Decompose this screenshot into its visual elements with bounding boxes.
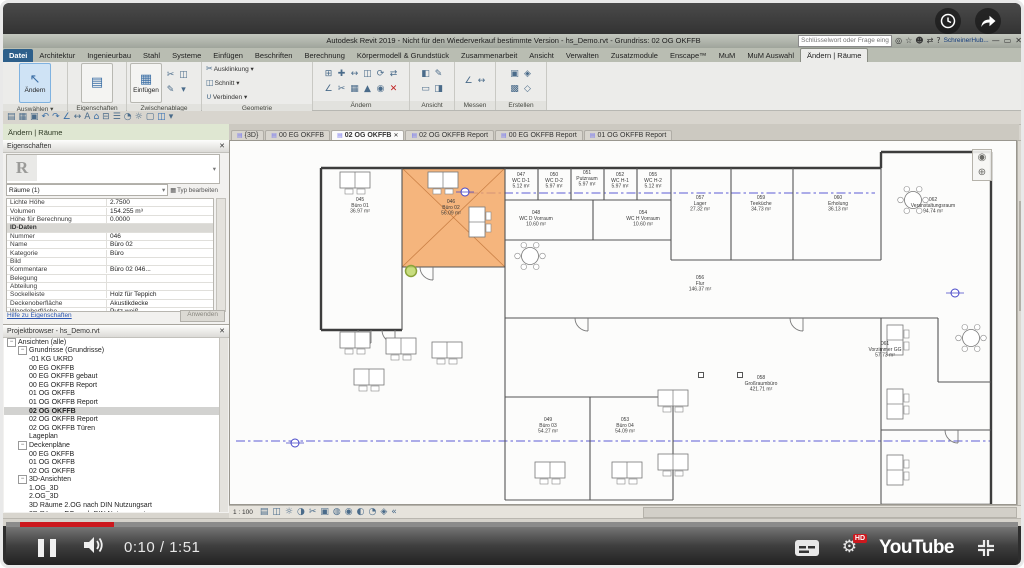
property-label: Lichte Höhe (7, 199, 107, 206)
tree-item-label: 02 OG OKFFB (29, 468, 75, 475)
close-properties-icon[interactable]: ✕ (219, 142, 225, 150)
view-tab-label: {3D} (245, 132, 259, 139)
tree-item-label: -01 KG UKRD (29, 356, 73, 363)
view-tab-icon: ▤ (411, 132, 417, 139)
create-assembly-icon[interactable]: ▩ (509, 84, 520, 95)
room-label-text: 36.13 m² (828, 207, 848, 213)
selection-filter-value: Räume (1) (9, 187, 40, 194)
geometry-tool[interactable]: ∪Verbinden ▾ (205, 91, 247, 103)
ribbon-tab[interactable]: Architektur (33, 49, 81, 62)
tree-toggle-icon[interactable]: − (18, 346, 27, 355)
property-label: Kommentare (7, 266, 107, 273)
revit-family-thumbnail: R (7, 155, 37, 181)
view-tab-icon: ▤ (337, 132, 343, 139)
tree-item[interactable]: 2.OG_3D (4, 493, 219, 502)
room-label-text: 5.12 m² (513, 184, 530, 190)
browser-scrollbar[interactable] (219, 338, 228, 512)
view-tab[interactable]: ▤01 OG OKFFB Report (584, 130, 673, 140)
room-label-text: 146.37 m² (689, 287, 712, 293)
apply-button[interactable]: Anwenden (180, 310, 225, 322)
tree-item-label: 3D Räume 2.OG nach DIN Nutzungsart (29, 502, 152, 509)
tree-item-label: 01 OG OKFFB (29, 390, 75, 397)
ribbon-panels: ↖ Ändern Auswählen ▾ ▤ Eigenschaften (3, 62, 1021, 111)
property-row: Abteilung (7, 283, 213, 291)
property-row: SockelleisteHolz für Teppich (7, 291, 213, 299)
create-parts-icon[interactable]: ◇ (523, 84, 532, 95)
tree-item-label: 1.OG_3D (29, 485, 59, 492)
tree-item-label: Deckenpläne (29, 442, 70, 449)
create-group-icon[interactable]: ▣ (509, 69, 520, 80)
room-label-text: 54.09 m² (615, 429, 635, 435)
tree-item-label: 00 EG OKFFB (29, 451, 74, 458)
property-label: Sockelleiste (7, 291, 107, 298)
geometry-tool-label: Verbinden ▾ (213, 94, 247, 101)
room-label-text: 10.60 m² (526, 222, 546, 228)
youtube-logo[interactable]: YouTube (879, 537, 954, 559)
edit-type-icon: ▦ (170, 187, 176, 194)
property-row: Volumen154.255 m³ (7, 207, 213, 215)
ribbon-tab[interactable]: MuM Auswahl (741, 49, 800, 62)
offset-icon[interactable]: ↔ (350, 69, 360, 80)
properties-icon: ▤ (91, 76, 103, 90)
property-label: Höhe für Berechnung (7, 216, 107, 223)
property-label: Name (7, 241, 107, 248)
create-similar-icon[interactable]: ◈ (523, 69, 532, 80)
callout-icon[interactable]: ▭ (420, 84, 431, 95)
titlebar-icons: ◎☆☻⇄? (895, 36, 940, 46)
pause-button[interactable] (38, 539, 56, 557)
edit-type-button[interactable]: ▦ Typ bearbeiten (170, 187, 218, 194)
close-inactive-icon[interactable]: ▢ (145, 112, 156, 123)
revit-titlebar: Autodesk Revit 2019 - Nicht für den Wied… (3, 33, 1021, 48)
tree-item-label: 01 OG OKFFB Report (29, 399, 98, 406)
properties-scrollbar[interactable] (216, 198, 226, 312)
view-tab[interactable]: ▤00 EG OKFFB (265, 130, 330, 140)
room-label-text: 56.09 m² (441, 211, 461, 217)
tree-toggle-icon[interactable]: − (18, 475, 27, 484)
room-label-text: 5.12 m² (645, 184, 662, 190)
options-bar: Ändern | Räume (3, 124, 234, 141)
cart-icon[interactable]: ⇄ (927, 36, 934, 46)
reveal-hidden-icon[interactable]: ◉ (344, 507, 354, 518)
property-label: Bild (7, 258, 107, 265)
view-tab-label: 02 OG OKFFB Report (419, 132, 488, 139)
property-value[interactable]: 0.0000 (107, 216, 213, 223)
property-row: KommentareBüro 02 046... (7, 266, 213, 274)
restore-icon[interactable]: ▭ (1004, 36, 1012, 46)
sun-path-icon[interactable]: ☼ (284, 507, 294, 518)
panel-measure: ∠↔ Messen (455, 62, 496, 110)
panel-label-create: Erstellen (496, 101, 546, 110)
share-button[interactable] (975, 8, 1001, 34)
properties-help-link[interactable]: Hilfe zu Eigenschaften (7, 312, 72, 319)
close-icon[interactable]: ✕ (1015, 36, 1021, 46)
room-label-text: 34.73 m² (751, 207, 771, 213)
tree-item[interactable]: -01 KG UKRD (4, 355, 219, 364)
tree-item-label: 02 OG OKFFB (29, 408, 76, 415)
tree-item-label: Ansichten (alle) (18, 339, 66, 346)
view-tab-label: 00 EG OKFFB Report (509, 132, 577, 139)
modify-button[interactable]: ↖ Ändern (19, 63, 51, 103)
window-title: Autodesk Revit 2019 - Nicht für den Wied… (326, 36, 700, 45)
copy-icon[interactable]: ◫ (362, 69, 373, 80)
tree-item[interactable]: 02 OG OKFFB Türen (4, 424, 219, 433)
panel-properties: ▤ Eigenschaften (68, 62, 127, 110)
clock-icon (940, 13, 956, 29)
tree-item[interactable]: 00 EG OKFFB (4, 450, 219, 459)
property-value[interactable]: Büro 02 046... (107, 266, 213, 273)
analysis-icon[interactable]: ◈ (379, 507, 388, 518)
chevron-down-icon: ▾ (162, 186, 165, 194)
property-label: Belegung (7, 275, 107, 282)
property-label: Abteilung (7, 283, 107, 290)
captions-button[interactable] (794, 539, 820, 557)
tree-item[interactable]: −Deckenpläne (4, 441, 219, 450)
ribbon-tab[interactable]: Stahl (137, 49, 166, 62)
constraints-icon[interactable]: « (390, 507, 398, 518)
navigation-bar: ◉⊕ (972, 149, 992, 181)
properties-palette: Eigenschaften ✕ R ▾ Räume (1) ▾ ▦ Typ be… (3, 140, 230, 324)
view-tab-label: 02 OG OKFFB (345, 132, 392, 139)
wireframe-icon[interactable]: ◧ (420, 69, 431, 80)
tree-item-label: Grundrisse (Grundrisse) (29, 347, 104, 354)
volume-button[interactable] (82, 535, 106, 560)
tree-item-label: 02 OG OKFFB Report (29, 416, 98, 423)
time-display: 0:10 / 1:51 (124, 539, 200, 556)
property-value[interactable]: 2.7500 (107, 199, 213, 206)
worksharing-display-icon[interactable]: ◐ (356, 507, 366, 518)
view-tab-label: 01 OG OKFFB Report (597, 132, 666, 139)
default-3d-view-icon[interactable]: ⌂ (92, 112, 100, 123)
room-label-text: 5.97 m² (546, 184, 563, 190)
drawing-canvas[interactable]: 045Büro 0136.97 m²046Büro 0256.09 m²047W… (229, 140, 1017, 505)
ribbon-tab[interactable]: Berechnung (298, 49, 350, 62)
selection-row: Räume (1) ▾ ▦ Typ bearbeiten (6, 184, 218, 196)
properties-button[interactable]: ▤ (81, 63, 113, 103)
type-selector-dropdown-icon[interactable]: ▾ (213, 165, 216, 173)
canvas-horizontal-scrollbar[interactable] (643, 507, 1017, 518)
tree-item[interactable]: 01 OG OKFFB Report (4, 398, 219, 407)
aligned-dimension-icon[interactable]: ↔ (73, 112, 83, 123)
tree-item-label: 02 OG OKFFB Türen (29, 425, 95, 432)
geometry-tool-label: Schnitt ▾ (215, 80, 240, 87)
tree-item-label: 3D-Ansichten (29, 476, 71, 483)
tree-toggle-icon[interactable]: − (7, 338, 16, 347)
quick-access-toolbar: ▤▦▣↶↷∠↔A⌂⊟☰◔☼▢◫▾ (3, 111, 1021, 125)
sign-in-icon[interactable]: ☻ (915, 36, 923, 46)
room-label-text: 27.32 m² (690, 207, 710, 213)
section-icon[interactable]: ⊟ (101, 112, 111, 123)
canvas-background (230, 141, 1016, 504)
watch-later-button[interactable] (935, 8, 961, 34)
window-controls: —▭✕ (992, 36, 1021, 46)
ribbon-tab-bar: DateiArchitekturIngenieurbauStahlSysteme… (3, 48, 1021, 62)
canvas-vertical-scrollbar[interactable] (1017, 140, 1021, 518)
player-right-controls: ⚙ HD YouTube (794, 537, 996, 559)
tree-item[interactable]: 3D Räume EG nach DIN Nutzungsart (4, 510, 219, 512)
property-label: Kategorie (7, 250, 107, 257)
ribbon-tab[interactable]: Beschriften (249, 49, 299, 62)
player-controls: 0:10 / 1:51 ⚙ HD YouTube (6, 527, 1018, 565)
match-type-icon[interactable]: ✎ (166, 85, 176, 96)
property-value[interactable]: Holz für Teppich (107, 291, 213, 298)
room-label-text: 5.97 m² (612, 184, 629, 190)
geometry-tool-icon: ∪ (205, 91, 213, 102)
crop-view-icon[interactable]: ✂ (308, 507, 318, 518)
undo-icon[interactable]: ↶ (41, 112, 51, 123)
tree-item[interactable]: −Ansichten (alle) (4, 338, 219, 347)
project-browser-header: Projektbrowser - hs_Demo.rvt ✕ (3, 325, 229, 338)
delete-icon[interactable]: ✕ (389, 84, 399, 95)
tree-item[interactable]: 01 OG OKFFB (4, 458, 219, 467)
ribbon-tab[interactable]: MuM (713, 49, 742, 62)
view-tab-close-icon[interactable]: ✕ (393, 132, 398, 139)
property-label: Nummer (7, 233, 107, 240)
video-player: Autodesk Revit 2019 - Nicht für den Wied… (0, 0, 1024, 568)
help-icon[interactable]: ? (936, 36, 940, 46)
panel-label-measure: Messen (455, 101, 495, 110)
paste-button-label: Einfügen (133, 87, 159, 94)
tree-item-label: 00 EG OKFFB Report (29, 382, 97, 389)
measure-between-icon[interactable]: ∠ (463, 76, 473, 87)
tree-item-label: 3D Räume EG nach DIN Nutzungsart (29, 511, 145, 512)
property-row: Belegung (7, 275, 213, 283)
temporary-view-icon[interactable]: ◔ (368, 507, 378, 518)
geometry-tool[interactable]: ✂Ausklinkung ▾ (205, 63, 254, 75)
property-row: DeckenoberflächeAkustikdecke (7, 300, 213, 308)
panel-modify: ⊞✚↔◫⟳⇄∠✂▦▲◉✕ Ändern (313, 62, 410, 110)
view-tab-icon: ▤ (237, 132, 243, 139)
room-label-text: 5.97 m² (579, 182, 596, 188)
zoom-tool-icon[interactable]: ⊕ (978, 165, 986, 180)
property-row: KategorieBüro (7, 249, 213, 257)
view-tab-bar: ▤{3D}▤00 EG OKFFB▤02 OG OKFFB✕▤02 OG OKF… (229, 124, 1019, 140)
titlebar-right: ◎☆☻⇄? SchreinerHub... —▭✕ (798, 34, 1021, 47)
switch-windows-icon[interactable]: ◫ (156, 112, 167, 123)
room-label-text: 36.97 m² (350, 209, 370, 215)
render-icon[interactable]: ◔ (123, 112, 133, 123)
array-icon[interactable]: ▦ (349, 84, 360, 95)
user-interface-icon[interactable]: ▾ (168, 112, 175, 123)
properties-table: Lichte Höhe2.7500Volumen154.255 m³Höhe f… (6, 198, 214, 312)
edit-type-label: Typ bearbeiten (177, 187, 218, 194)
room-label-text: 94.74 m² (923, 209, 943, 215)
ribbon-tab[interactable]: Verwalten (560, 49, 605, 62)
selection-cursor (406, 266, 417, 277)
geometry-tool-icon: ✂ (205, 63, 214, 74)
geometry-tool-icon: ◫ (205, 77, 215, 88)
selection-filter-dropdown[interactable]: Räume (1) ▾ (6, 184, 168, 196)
ribbon-tab[interactable]: Enscape™ (664, 49, 713, 62)
property-row: Lichte Höhe2.7500 (7, 199, 213, 207)
save-icon[interactable]: ▦ (18, 112, 29, 123)
minimize-icon[interactable]: — (992, 36, 1000, 46)
room-label-text: 57.73 m² (875, 353, 895, 359)
floor-plan[interactable]: 045Büro 0136.97 m²046Büro 0256.09 m²047W… (230, 141, 1016, 504)
tree-item-label: 01 OG OKFFB (29, 459, 75, 466)
tree-item-label: Lageplan (29, 433, 58, 440)
tree-item[interactable]: 00 EG OKFFB Report (4, 381, 219, 390)
shadows-icon[interactable]: ◑ (296, 507, 306, 518)
scale-icon[interactable]: ▲ (363, 84, 372, 95)
property-value[interactable]: 154.255 m³ (107, 208, 213, 215)
property-value[interactable]: Büro (107, 250, 213, 257)
tree-item[interactable]: 00 EG OKFFB gebaut (4, 372, 219, 381)
scale-control[interactable]: 1 : 100 (233, 509, 253, 516)
sun-icon[interactable]: ☼ (134, 112, 144, 123)
project-browser: Projektbrowser - hs_Demo.rvt ✕ −Ansichte… (3, 324, 230, 513)
tree-item[interactable]: 02 OG OKFFB Report (4, 415, 219, 424)
column-symbol (699, 373, 704, 378)
temporary-hide-icon[interactable]: ◍ (332, 507, 342, 518)
thin-lines-icon[interactable]: ☰ (112, 112, 122, 123)
view-tab-label: 00 EG OKFFB (279, 132, 324, 139)
tree-item[interactable]: 02 OG OKFFB (4, 407, 219, 416)
visual-style-icon[interactable]: ◫ (271, 507, 282, 518)
ribbon-tab[interactable]: Zusatzmodule (605, 49, 664, 62)
paste-button[interactable]: ▦ Einfügen (130, 63, 162, 103)
tree-item[interactable]: Lageplan (4, 433, 219, 442)
pin-icon[interactable]: ◉ (376, 84, 386, 95)
view-tab-icon: ▤ (590, 132, 596, 139)
tree-item[interactable]: 00 EG OKFFB (4, 364, 219, 373)
properties-footer: Hilfe zu Eigenschaften Anwenden (3, 309, 229, 322)
view-tab-icon: ▤ (501, 132, 507, 139)
tree-item[interactable]: −3D-Ansichten (4, 476, 219, 485)
panel-label-modify: Ändern (313, 101, 409, 110)
ribbon-tab[interactable]: Körpermodell & Grundstück (351, 49, 455, 62)
tree-item-label: 2.OG_3D (29, 493, 59, 500)
property-value[interactable]: Büro 02 (107, 241, 213, 248)
panel-clipboard: ▦ Einfügen ✂◫✎▾ Zwischenablage (127, 62, 202, 110)
show-crop-icon[interactable]: ▣ (319, 507, 330, 518)
property-row: Bild (7, 258, 213, 266)
geometry-tool-label: Ausklinkung ▾ (214, 66, 254, 73)
panel-label-view: Ansicht (410, 101, 454, 110)
revit-window: Autodesk Revit 2019 - Nicht für den Wied… (3, 33, 1021, 525)
ribbon-tab[interactable]: Datei (3, 49, 33, 62)
properties-header: Eigenschaften ✕ (3, 140, 229, 153)
view-tab[interactable]: ▤02 OG OKFFB Report (405, 130, 494, 140)
ribbon-tab[interactable]: Ändern | Räume (800, 48, 868, 62)
modify-button-label: Ändern (25, 87, 46, 94)
tree-item[interactable]: 1.OG_3D (4, 484, 219, 493)
view-tab-icon: ▤ (271, 132, 277, 139)
speaker-icon (82, 535, 106, 555)
measure-icon[interactable]: ∠ (62, 112, 72, 123)
tree-item-label: 00 EG OKFFB gebaut (29, 373, 97, 380)
tree-item[interactable]: −Grundrisse (Grundrisse) (4, 347, 219, 356)
move-icon[interactable]: ✚ (337, 69, 347, 80)
text-icon[interactable]: A (83, 112, 91, 123)
dimension-icon[interactable]: ↔ (477, 76, 487, 87)
options-bar-label: Ändern | Räume (8, 128, 62, 137)
room-label-text: 10.60 m² (633, 222, 653, 228)
type-selector[interactable]: R ▾ (6, 154, 220, 184)
panel-create: ▣◈▩◇ Erstellen (496, 62, 547, 110)
project-browser-title: Projektbrowser - hs_Demo.rvt (7, 328, 100, 335)
redo-icon[interactable]: ↷ (51, 112, 61, 123)
share-arrow-icon (979, 13, 997, 29)
detail-level-icon[interactable]: ▤ (259, 507, 270, 518)
property-label: Volumen (7, 208, 107, 215)
tree-item[interactable]: 02 OG OKFFB (4, 467, 219, 476)
geometry-tool[interactable]: ◫Schnitt ▾ (205, 77, 240, 89)
paste-options-icon[interactable]: ▾ (180, 85, 187, 96)
rotate-icon[interactable]: ⟳ (376, 69, 386, 80)
room-label-text: 54.27 m² (538, 429, 558, 435)
view-range-icon[interactable]: ◨ (433, 84, 444, 95)
cut-icon[interactable]: ✂ (166, 70, 176, 81)
property-value[interactable]: Akustikdecke (107, 300, 213, 307)
search-input[interactable] (798, 35, 892, 47)
property-row: NameBüro 02 (7, 241, 213, 249)
account-menu[interactable]: SchreinerHub... (944, 37, 989, 44)
video-frame[interactable]: Autodesk Revit 2019 - Nicht für den Wied… (3, 3, 1021, 565)
align-icon[interactable]: ⊞ (324, 69, 334, 80)
project-browser-tree: −Ansichten (alle)−Grundrisse (Grundrisse… (4, 338, 219, 512)
settings-button[interactable]: ⚙ HD (842, 539, 857, 557)
property-section-header: ID-Daten (7, 224, 213, 232)
tree-item[interactable]: 3D Räume 2.OG nach DIN Nutzungsart (4, 501, 219, 510)
column-symbol (738, 373, 743, 378)
property-value[interactable]: 046 (107, 233, 213, 240)
ribbon-tab[interactable]: Ansicht (523, 49, 560, 62)
print-icon[interactable]: ▣ (29, 112, 40, 123)
trim-icon[interactable]: ∠ (323, 84, 333, 95)
view-tab[interactable]: ▤{3D} (231, 130, 264, 140)
panel-view: ◧✎▭◨ Ansicht (410, 62, 455, 110)
panel-geometry: ✂Ausklinkung ▾◫Schnitt ▾∪Verbinden ▾ Geo… (202, 62, 313, 110)
paste-icon: ▦ (140, 73, 152, 87)
ribbon-tab[interactable]: Einfügen (207, 49, 249, 62)
favorites-icon[interactable]: ☆ (905, 36, 912, 46)
view-tab[interactable]: ▤00 EG OKFFB Report (495, 130, 583, 140)
video-top-gradient (3, 3, 1021, 34)
open-icon[interactable]: ▤ (6, 112, 17, 123)
tree-toggle-icon[interactable]: − (18, 441, 27, 450)
copy-to-clipboard-icon[interactable]: ◫ (178, 70, 189, 81)
exit-fullscreen-button[interactable] (976, 538, 996, 558)
tree-item-label: 00 EG OKFFB (29, 365, 74, 372)
room-label-text: 421.71 m² (750, 387, 773, 393)
view-tab[interactable]: ▤02 OG OKFFB✕ (331, 130, 404, 140)
panel-select: ↖ Ändern Auswählen ▾ (3, 62, 68, 110)
property-row: Höhe für Berechnung0.0000 (7, 216, 213, 224)
property-label: Deckenoberfläche (7, 300, 107, 307)
close-browser-icon[interactable]: ✕ (219, 327, 225, 335)
hd-badge: HD (853, 534, 867, 543)
search-binoculars-icon[interactable]: ◎ (895, 36, 902, 46)
properties-title: Eigenschaften (7, 143, 51, 150)
ribbon-tab[interactable]: Systeme (166, 49, 207, 62)
property-row: Nummer046 (7, 233, 213, 241)
cursor-arrow-icon: ↖ (30, 73, 41, 87)
view-control-icons: ▤◫☼◑✂▣◍◉◐◔◈« (259, 507, 398, 518)
split-icon[interactable]: ✂ (337, 84, 347, 95)
mirror-icon[interactable]: ⇄ (389, 69, 399, 80)
ribbon-tab[interactable]: Zusammenarbeit (455, 49, 523, 62)
steering-wheel-icon[interactable]: ◉ (978, 150, 987, 165)
tree-item[interactable]: 01 OG OKFFB (4, 390, 219, 399)
linework-icon[interactable]: ✎ (434, 69, 444, 80)
ribbon-tab[interactable]: Ingenieurbau (81, 49, 137, 62)
